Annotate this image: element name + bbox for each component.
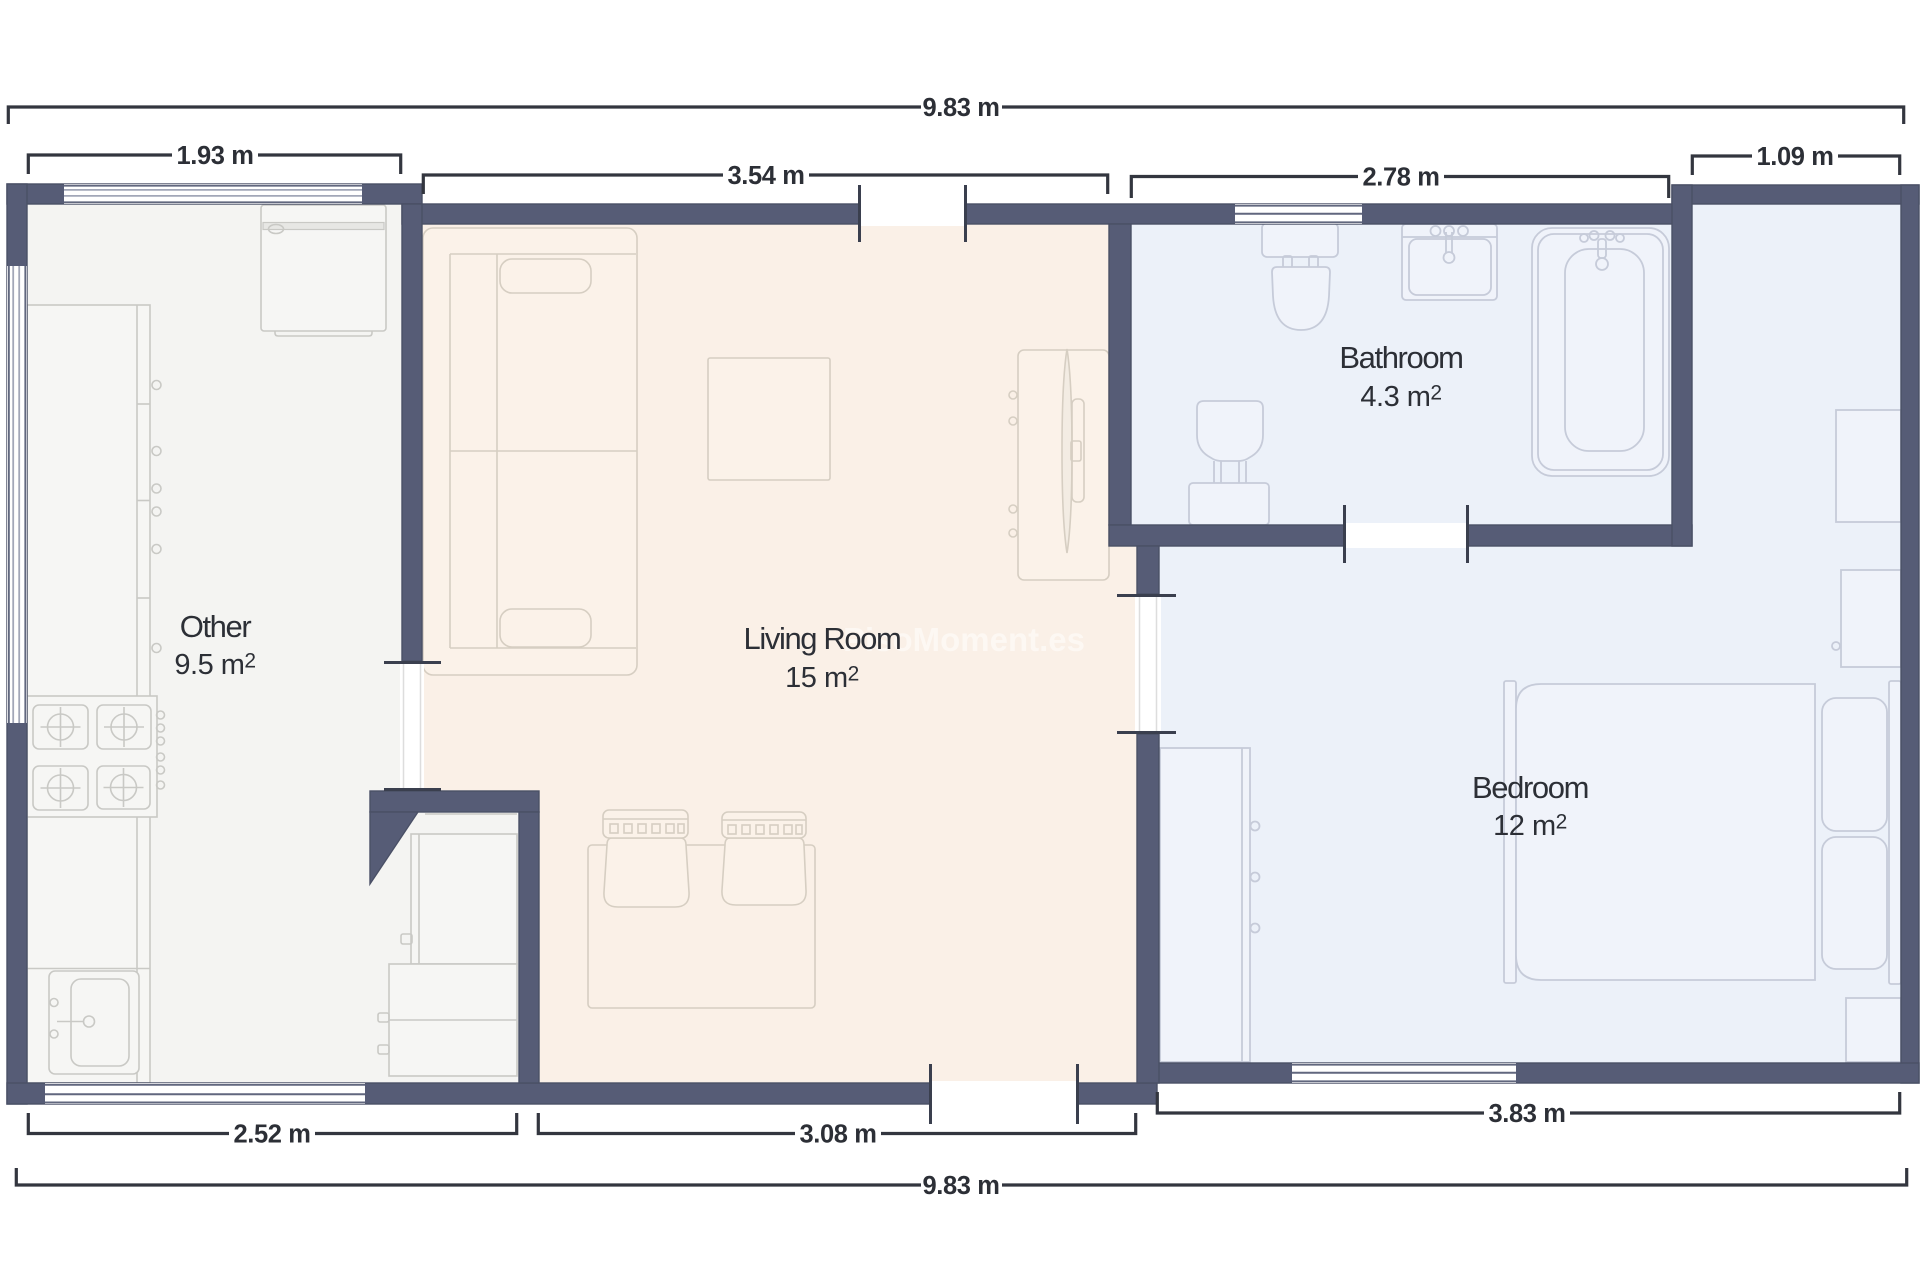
svg-text:9.83 m: 9.83 m (923, 94, 1000, 122)
svg-text:9.5 m2: 9.5 m2 (174, 649, 255, 681)
svg-text:3.83 m: 3.83 m (1489, 1100, 1566, 1128)
svg-text:2.52 m: 2.52 m (234, 1121, 311, 1149)
svg-text:3.54 m: 3.54 m (728, 162, 805, 190)
svg-text:1.93 m: 1.93 m (177, 142, 254, 170)
svg-text:3.08 m: 3.08 m (800, 1121, 877, 1149)
svg-text:2.78 m: 2.78 m (1363, 164, 1440, 192)
svg-text:9.83 m: 9.83 m (923, 1172, 1000, 1200)
svg-text:4.3 m2: 4.3 m2 (1360, 381, 1441, 413)
svg-text:Living Room: Living Room (744, 621, 901, 656)
svg-text:Bathroom: Bathroom (1339, 340, 1462, 375)
svg-text:Other: Other (180, 609, 252, 644)
svg-text:Bedroom: Bedroom (1472, 770, 1588, 805)
svg-text:1.09 m: 1.09 m (1757, 143, 1834, 171)
